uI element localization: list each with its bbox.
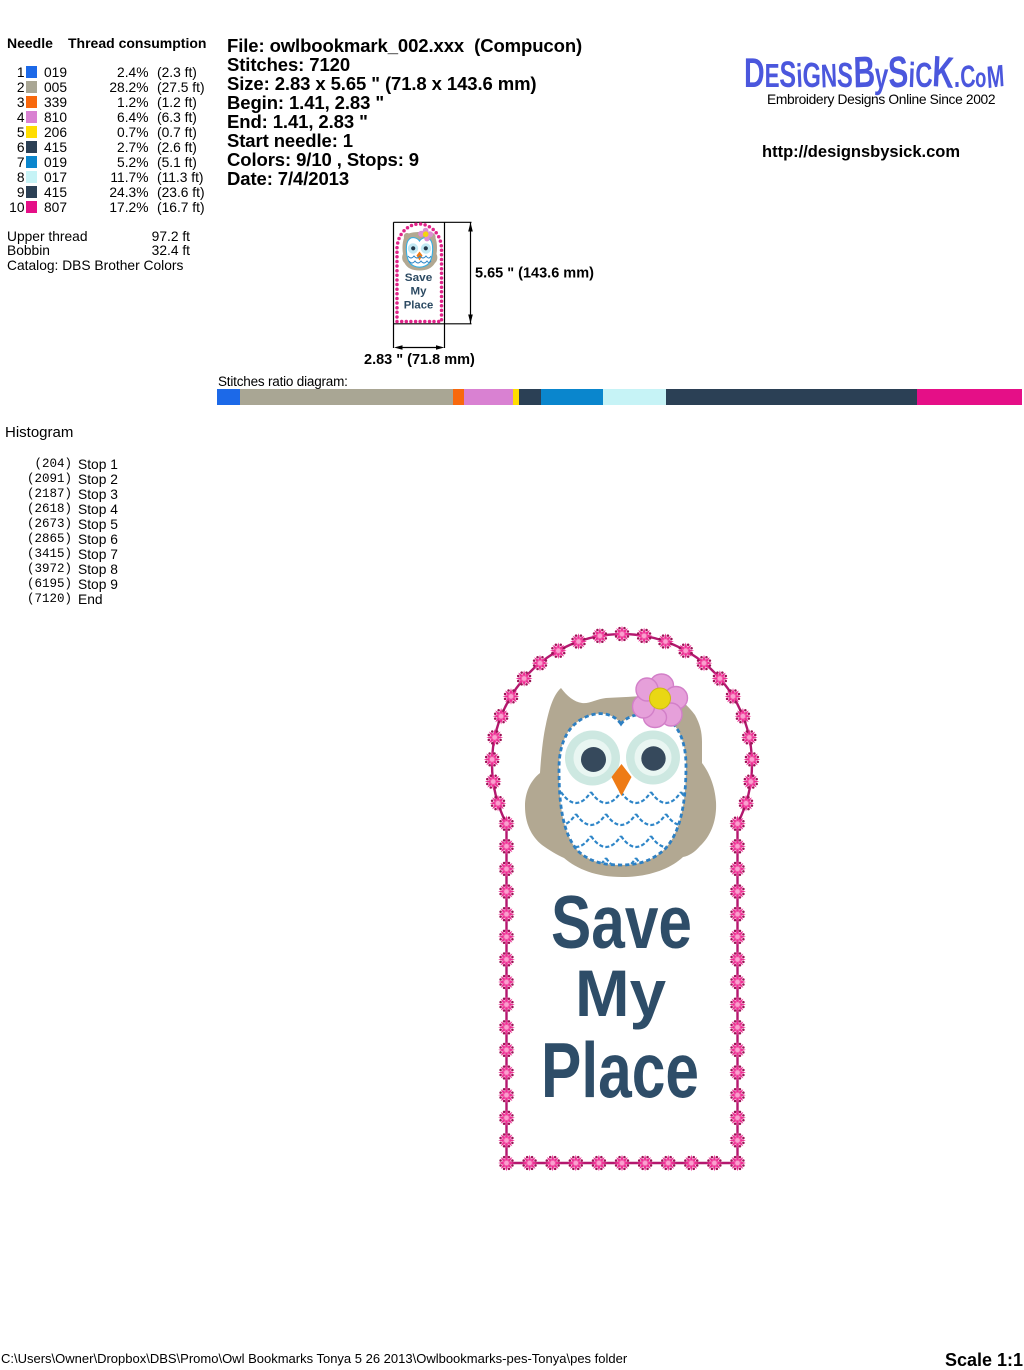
svg-text:Place: Place: [404, 300, 434, 312]
svg-text:5.65 " (143.6 mm): 5.65 " (143.6 mm): [475, 266, 594, 282]
svg-text:2.83 " (71.8 mm): 2.83 " (71.8 mm): [364, 352, 475, 368]
svg-text:Save: Save: [551, 880, 692, 964]
svg-text:My: My: [411, 286, 428, 298]
svg-text:My: My: [575, 956, 666, 1030]
svg-text:Save: Save: [405, 272, 433, 284]
svg-text:Place: Place: [541, 1026, 699, 1114]
